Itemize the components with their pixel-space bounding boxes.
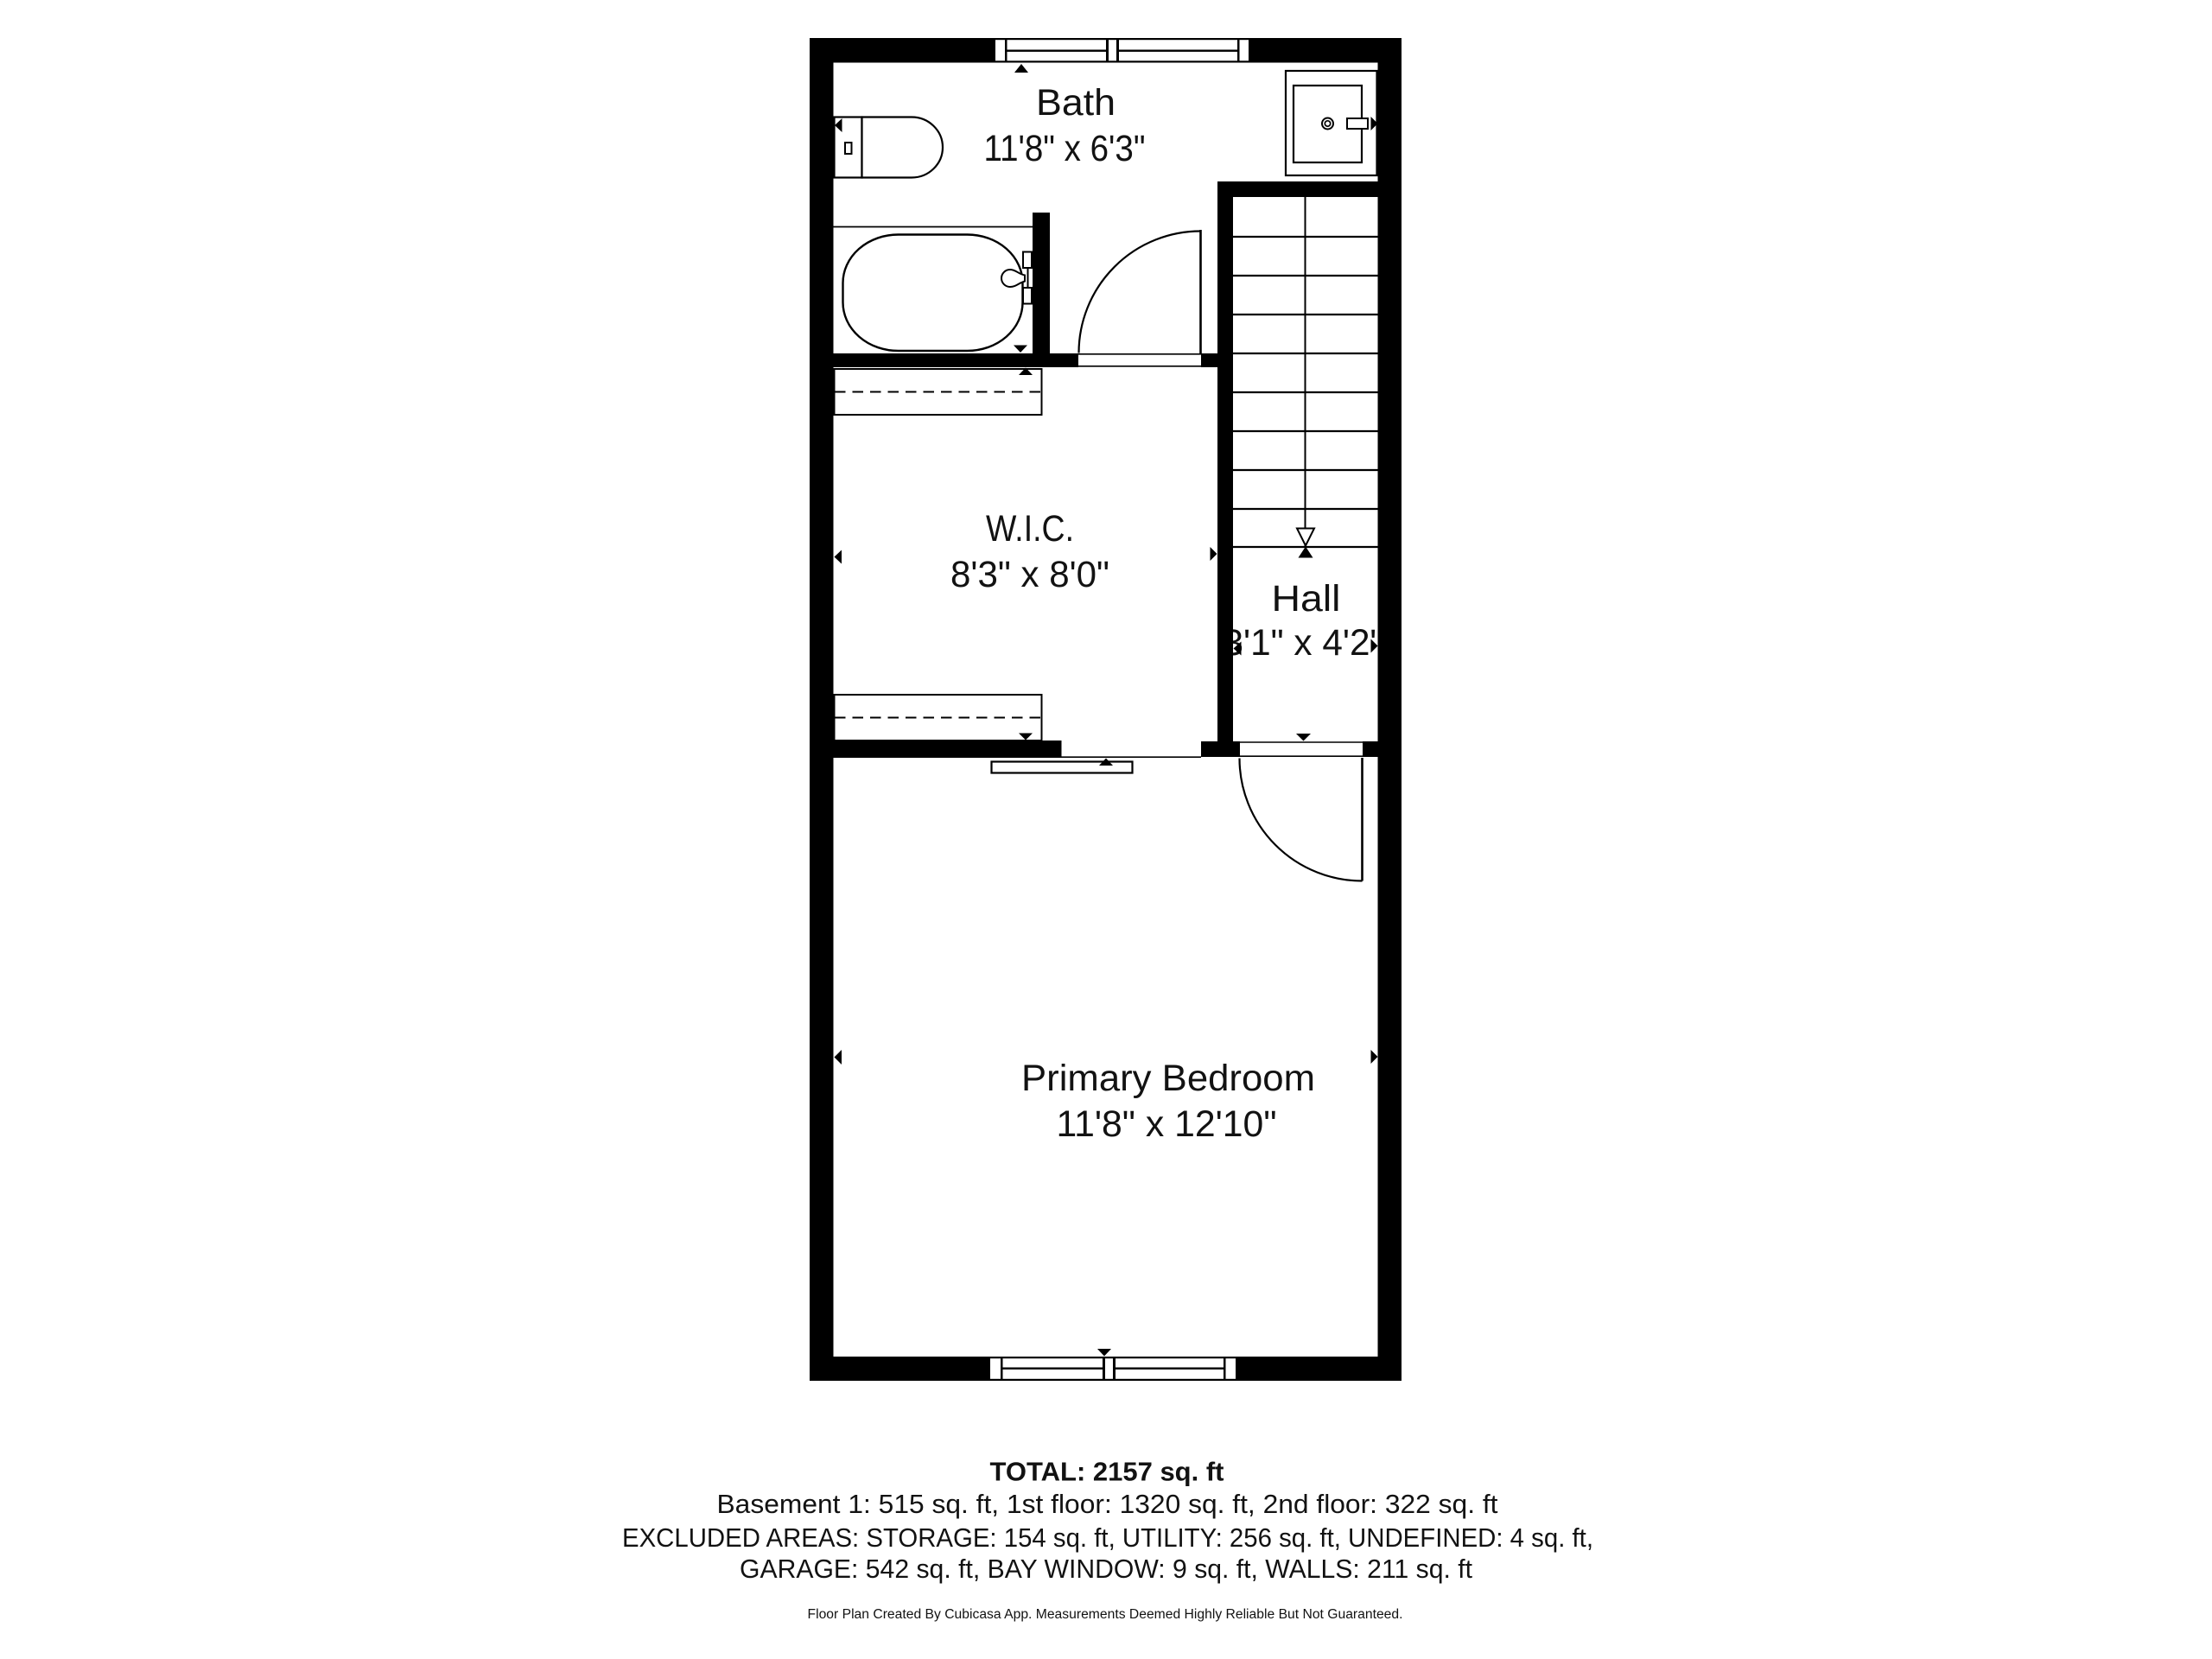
svg-text:Basement 1: 515 sq. ft, 1st fl: Basement 1: 515 sq. ft, 1st floor: 1320 …: [717, 1489, 1498, 1519]
svg-text:Primary Bedroom: Primary Bedroom: [1021, 1058, 1315, 1099]
svg-text:11'8" x 12'10": 11'8" x 12'10": [1057, 1103, 1277, 1145]
svg-text:11'8" x 6'3": 11'8" x 6'3": [984, 128, 1146, 169]
svg-text:TOTAL: 2157 sq. ft: TOTAL: 2157 sq. ft: [990, 1457, 1224, 1487]
svg-text:EXCLUDED AREAS: STORAGE: 154 s: EXCLUDED AREAS: STORAGE: 154 sq. ft, UTI…: [622, 1522, 1593, 1553]
svg-text:Hall: Hall: [1272, 578, 1341, 620]
svg-text:W.I.C.: W.I.C.: [986, 508, 1074, 550]
svg-text:Bath: Bath: [1036, 82, 1116, 124]
svg-text:Floor Plan Created By Cubicasa: Floor Plan Created By Cubicasa App. Meas…: [808, 1607, 1403, 1622]
svg-text:8'3" x 8'0": 8'3" x 8'0": [950, 554, 1109, 595]
svg-text:GARAGE: 542 sq. ft, BAY WINDOW: GARAGE: 542 sq. ft, BAY WINDOW: 9 sq. ft…: [740, 1554, 1472, 1584]
svg-text:3'1" x 4'2": 3'1" x 4'2": [1224, 622, 1383, 664]
